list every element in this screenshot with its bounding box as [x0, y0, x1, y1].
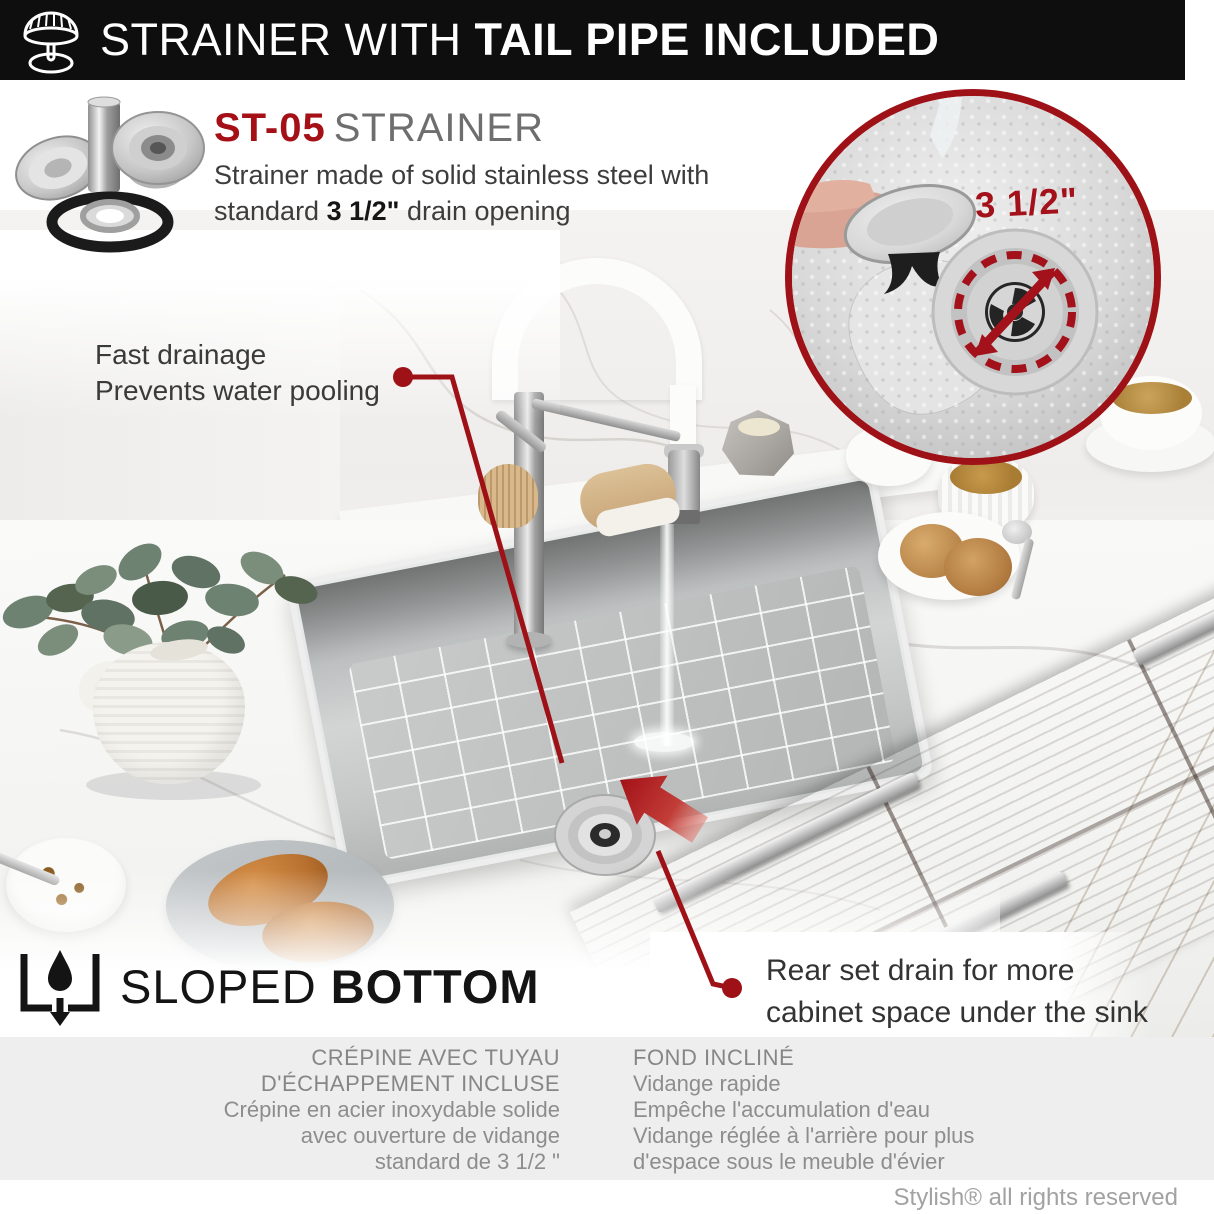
desc-line2-pre: standard [214, 196, 327, 226]
rubber-gaskets [52, 197, 168, 247]
french-left-body-line3: standard de 3 1/2 " [0, 1149, 560, 1175]
inset-size-label: 3 1/2" [974, 179, 1079, 226]
water-stream [660, 524, 674, 746]
cookie [944, 538, 1012, 596]
strainer-flange [112, 112, 204, 189]
product-description: Strainer made of solid stainless steel w… [214, 157, 774, 229]
sloped-bottom-label: SLOPED BOTTOM [120, 959, 540, 1014]
fast-drainage-callout: Fast drainage Prevents water pooling [95, 337, 380, 409]
candle-wax [738, 418, 780, 436]
ramekin-granola [950, 460, 1022, 494]
sloped-bottom-block: SLOPED BOTTOM [14, 942, 540, 1030]
product-title: ST-05STRAINER [214, 106, 774, 151]
rear-drain-callout: Rear set drain for more cabinet space un… [766, 950, 1148, 1034]
french-left-body-line2: avec ouverture de vidange [0, 1123, 560, 1149]
product-name: STRAINER [334, 106, 544, 150]
fast-drainage-line2: Prevents water pooling [95, 375, 380, 406]
strainer-icon [16, 5, 86, 75]
dish-brush [478, 464, 538, 528]
french-right-heading: FOND INCLINÉ [633, 1045, 1193, 1071]
french-left-body-line1: Crépine en acier inoxydable solide [0, 1097, 560, 1123]
water-splash [634, 732, 694, 752]
product-code: ST-05 [214, 106, 326, 150]
sloped-bottom-icon [14, 942, 106, 1030]
water-drop [48, 950, 72, 991]
title-regular: STRAINER WITH [100, 14, 475, 65]
header-bar: STRAINER WITH TAIL PIPE INCLUDED [0, 0, 1185, 80]
french-right-body-line1: Vidange rapide [633, 1071, 1193, 1097]
white-vase [93, 642, 245, 784]
page-title: STRAINER WITH TAIL PIPE INCLUDED [100, 14, 939, 66]
fast-drainage-line1: Fast drainage [95, 339, 266, 370]
inset-illustration [792, 96, 1154, 458]
title-bold: TAIL PIPE INCLUDED [475, 14, 940, 65]
rear-drain-line2: cabinet space under the sink [766, 996, 1148, 1029]
drain-zoom-inset [785, 89, 1161, 465]
copyright-text: Stylish® all rights reserved [894, 1184, 1178, 1212]
product-intro: ST-05STRAINER Strainer made of solid sta… [214, 106, 774, 229]
french-right-body-line2: Empêche l'accumulation d'eau [633, 1097, 1193, 1123]
faucet-base [506, 632, 552, 648]
strainer-parts-photo [6, 86, 211, 258]
product-infographic: STRAINER WITH TAIL PIPE INCLUDED [0, 0, 1214, 1214]
sloped-bold: BOTTOM [331, 960, 540, 1013]
french-left-heading-line1: CRÉPINE AVEC TUYAU [0, 1045, 560, 1071]
french-translation-band: CRÉPINE AVEC TUYAU D'ÉCHAPPEMENT INCLUSE… [0, 1037, 1214, 1180]
desc-line1: Strainer made of solid stainless steel w… [214, 160, 709, 190]
french-left-heading-line2: D'ÉCHAPPEMENT INCLUSE [0, 1071, 560, 1097]
desc-line2-post: drain opening [399, 196, 570, 226]
desc-drain-size: 3 1/2" [327, 196, 400, 226]
french-right-column: FOND INCLINÉ Vidange rapide Empêche l'ac… [633, 1045, 1193, 1175]
french-right-body-line4: d'espace sous le meuble d'évier [633, 1149, 1193, 1175]
french-left-column: CRÉPINE AVEC TUYAU D'ÉCHAPPEMENT INCLUSE… [0, 1045, 560, 1175]
rear-drain-line1: Rear set drain for more [766, 954, 1074, 987]
sloped-regular: SLOPED [120, 960, 331, 1013]
down-arrow [50, 1012, 70, 1026]
french-right-body-line3: Vidange réglée à l'arrière pour plus [633, 1123, 1193, 1149]
